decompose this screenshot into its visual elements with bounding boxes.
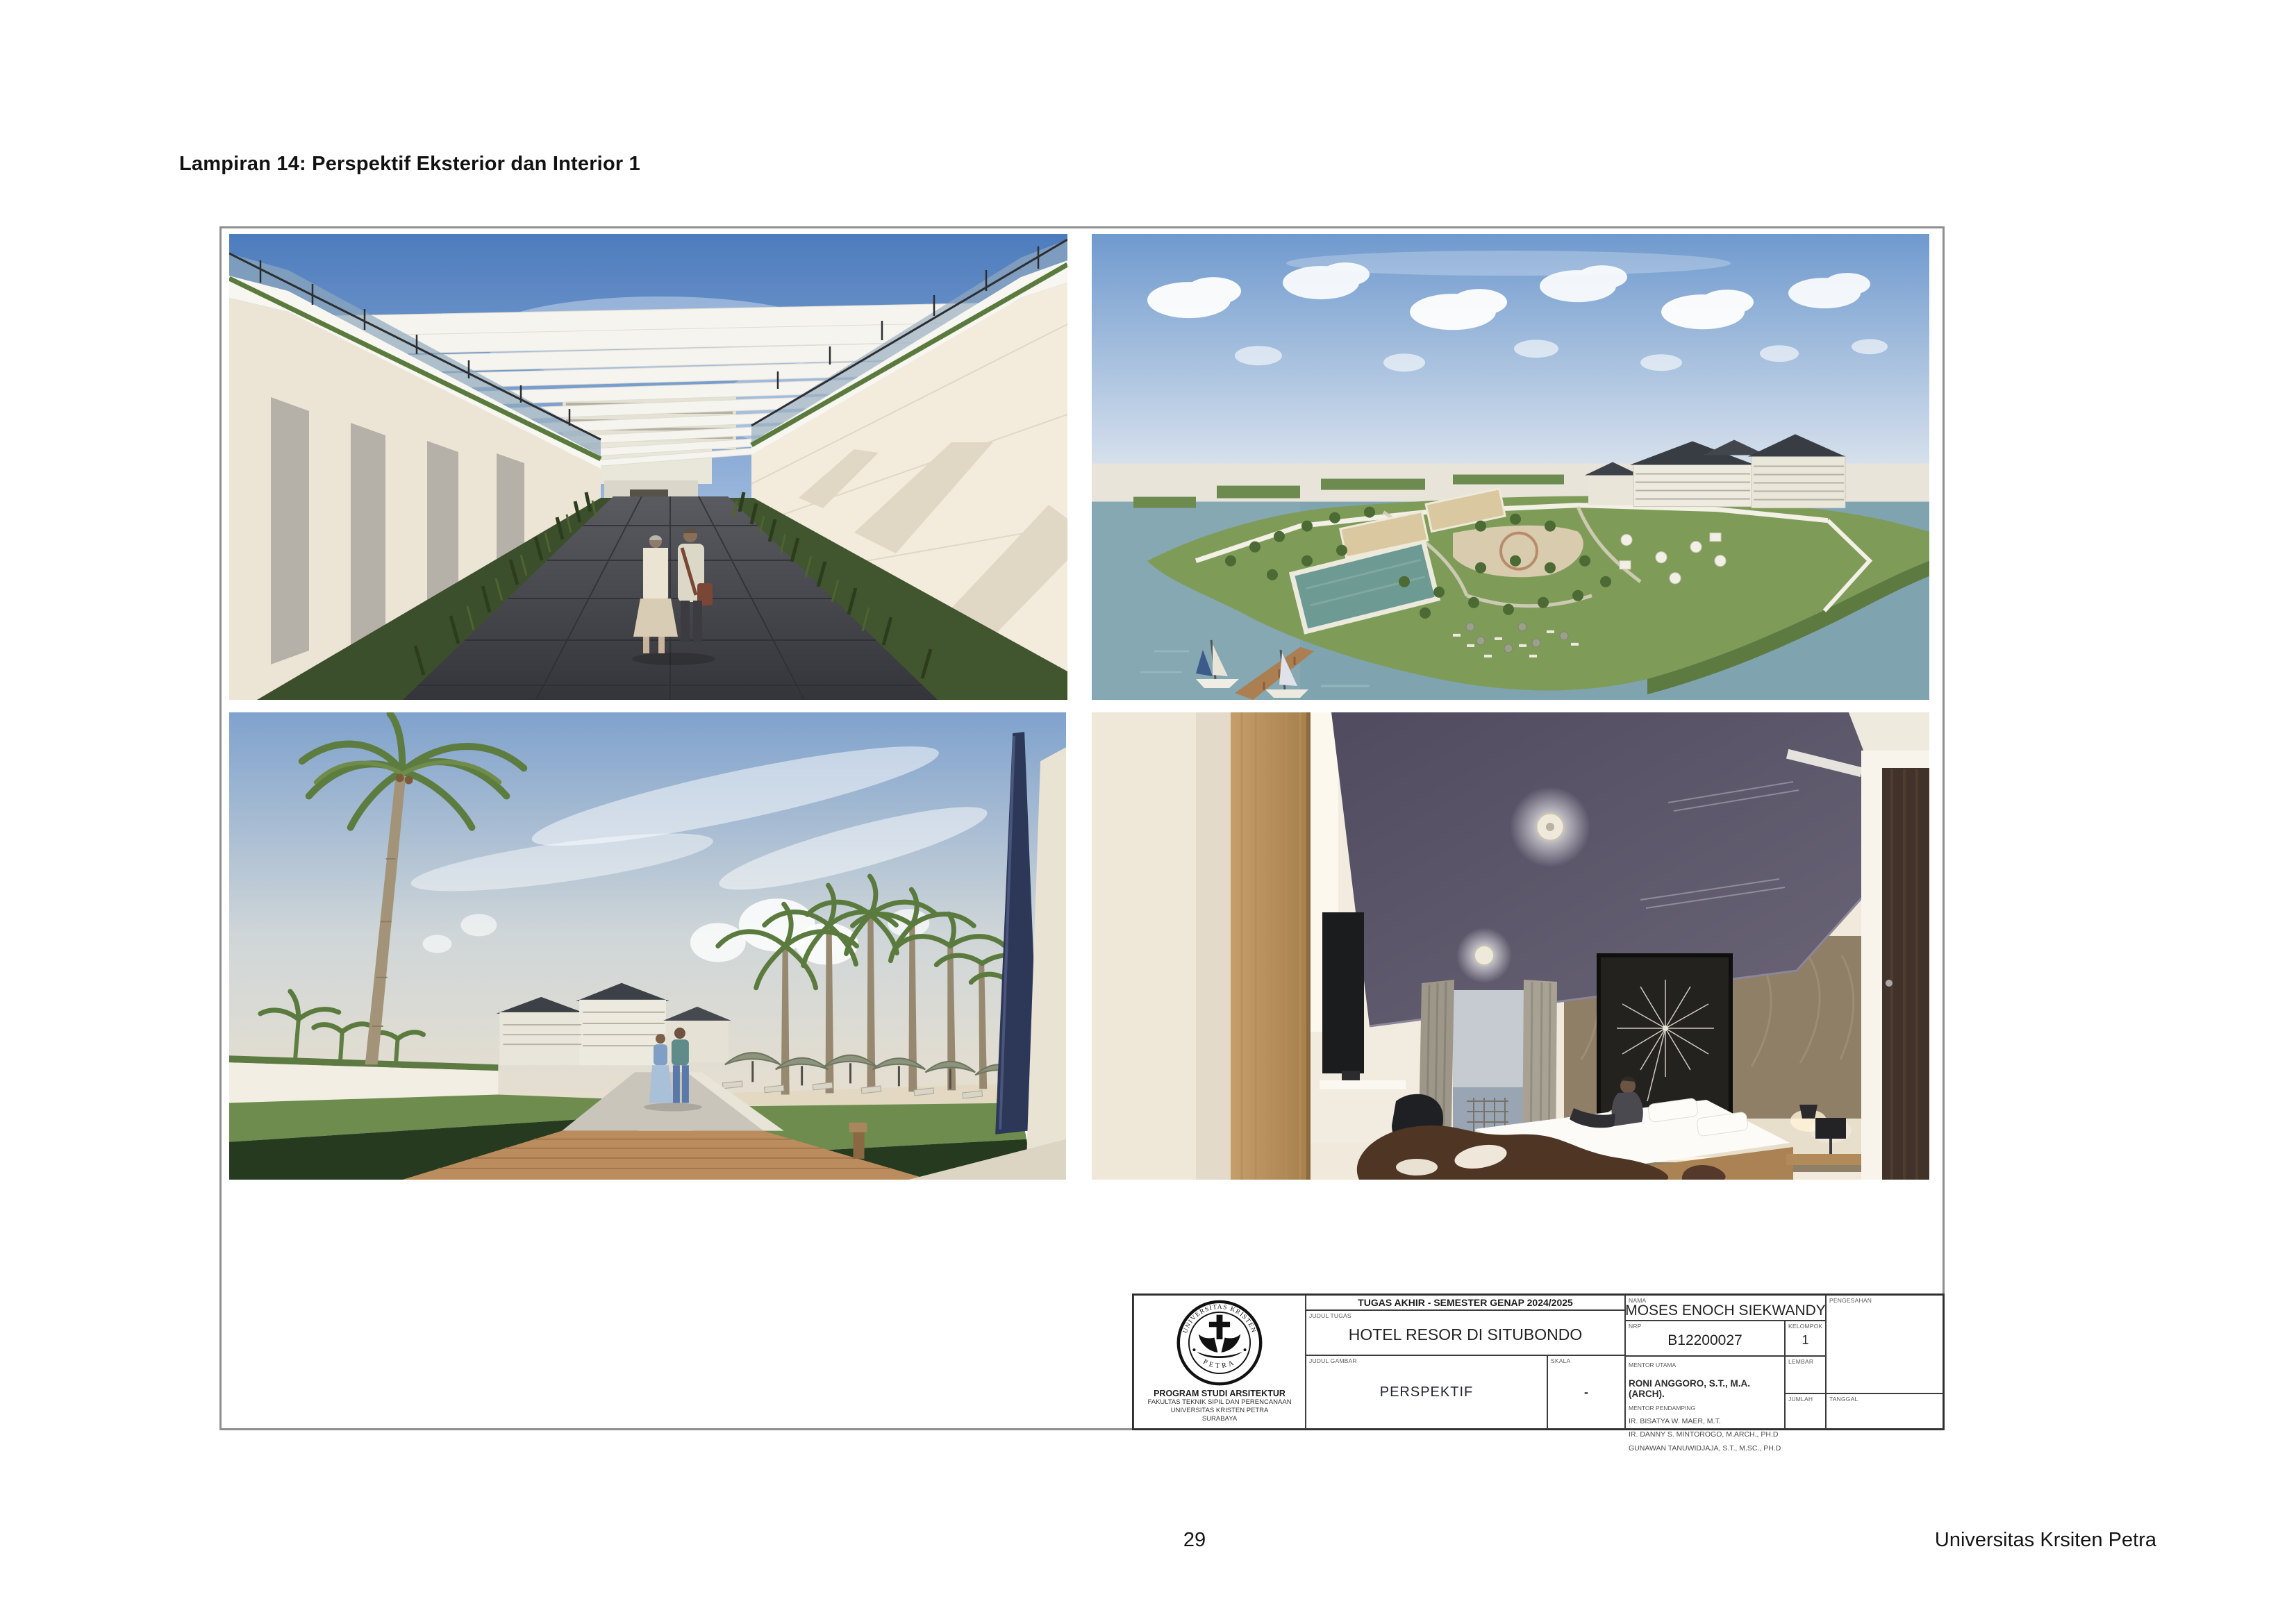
skala-cell: SKALA - [1547, 1355, 1625, 1429]
nrp-cell: NRP B12200027 [1625, 1321, 1785, 1356]
aerial-resort-render [1092, 234, 1929, 700]
pengesahan-cell: PENGESAHAN [1826, 1295, 1943, 1393]
palm-walkway-render [229, 712, 1066, 1180]
nama-cell: NAMA MOSES ENOCH SIEKWANDY [1625, 1295, 1826, 1321]
exterior-corridor-render [229, 234, 1067, 700]
page-number: 29 [1146, 1529, 1243, 1552]
bedroom-scene [1092, 712, 1929, 1180]
petra-university-seal-icon: UNIVERSITAS KRISTEN PETRA [1176, 1299, 1263, 1387]
faculty-name: FAKULTAS TEKNIK SIPIL DAN PERENCANAAN [1147, 1398, 1291, 1407]
skala-value: - [1548, 1356, 1624, 1428]
jumlah-cell: JUMLAH [1785, 1393, 1826, 1429]
mentor-pendamping-3: GUNAWAN TANUWIDJAJA, S.T., M.SC., PH.D [1629, 1443, 1781, 1454]
judul-tugas-value: HOTEL RESOR DI SITUBONDO [1306, 1311, 1624, 1355]
footer-institution: Universitas Krsiten Petra [1935, 1529, 2156, 1552]
kelompok-label: KELOMPOK [1788, 1323, 1822, 1330]
project-header: TUGAS AKHIR - SEMESTER GENAP 2024/2025 [1306, 1296, 1624, 1309]
hotel-room-interior-render [1092, 712, 1929, 1180]
lembar-cell: LEMBAR [1785, 1356, 1826, 1393]
judul-gambar-cell: JUDUL GAMBAR PERSPEKTIF [1306, 1355, 1547, 1429]
nama-label: NAMA [1629, 1297, 1646, 1304]
institution-cell: UNIVERSITAS KRISTEN PETRA PROGRAM STUDI … [1133, 1295, 1306, 1429]
dandelion-artwork [1599, 955, 1731, 1115]
program-name: PROGRAM STUDI ARSITEKTUR [1154, 1389, 1286, 1398]
city-name: SURABAYA [1202, 1415, 1237, 1423]
tanggal-cell: TANGGAL [1826, 1393, 1943, 1429]
judul-gambar-label: JUDUL GAMBAR [1309, 1357, 1357, 1364]
kelompok-cell: KELOMPOK 1 [1785, 1321, 1826, 1356]
judul-tugas-label: JUDUL TUGAS [1309, 1312, 1351, 1319]
pengesahan-label: PENGESAHAN [1829, 1297, 1872, 1304]
tanggal-label: TANGGAL [1829, 1396, 1858, 1403]
mentor-cell: MENTOR UTAMA RONI ANGGORO, S.T., M.A.(AR… [1625, 1356, 1785, 1429]
document-page: Lampiran 14: Perspektif Eksterior dan In… [0, 0, 2296, 1624]
university-name: UNIVERSITAS KRISTEN PETRA [1171, 1407, 1269, 1415]
student-name: MOSES ENOCH SIEKWANDY [1626, 1296, 1825, 1320]
aerial-scene [1092, 234, 1929, 700]
project-header-cell: TUGAS AKHIR - SEMESTER GENAP 2024/2025 [1306, 1295, 1625, 1310]
skala-label: SKALA [1551, 1357, 1570, 1364]
nrp-label: NRP [1629, 1323, 1642, 1330]
jumlah-label: JUMLAH [1788, 1396, 1813, 1403]
mentor-utama-name: RONI ANGGORO, S.T., M.A.(ARCH). [1629, 1378, 1781, 1399]
corridor-scene [229, 234, 1067, 700]
judul-gambar-value: PERSPEKTIF [1306, 1356, 1547, 1428]
room-door [1861, 751, 1929, 1180]
mentor-utama-label: MENTOR UTAMA [1629, 1362, 1676, 1368]
mentor-pendamping-2: IR. DANNY S. MINTOROGO, M.ARCH., PH.D [1629, 1429, 1781, 1440]
mentor-pendamping-1: IR. BISATYA W. MAER, M.T. [1629, 1416, 1781, 1427]
page-title: Lampiran 14: Perspektif Eksterior dan In… [179, 153, 640, 176]
walkway-scene [229, 712, 1066, 1180]
student-id: B12200027 [1626, 1321, 1784, 1355]
title-block: UNIVERSITAS KRISTEN PETRA PROGRAM STUDI … [1132, 1294, 1945, 1430]
judul-tugas-cell: JUDUL TUGAS HOTEL RESOR DI SITUBONDO [1306, 1310, 1625, 1355]
mentor-pendamping-label: MENTOR PENDAMPING [1629, 1405, 1695, 1412]
lembar-label: LEMBAR [1788, 1358, 1813, 1365]
